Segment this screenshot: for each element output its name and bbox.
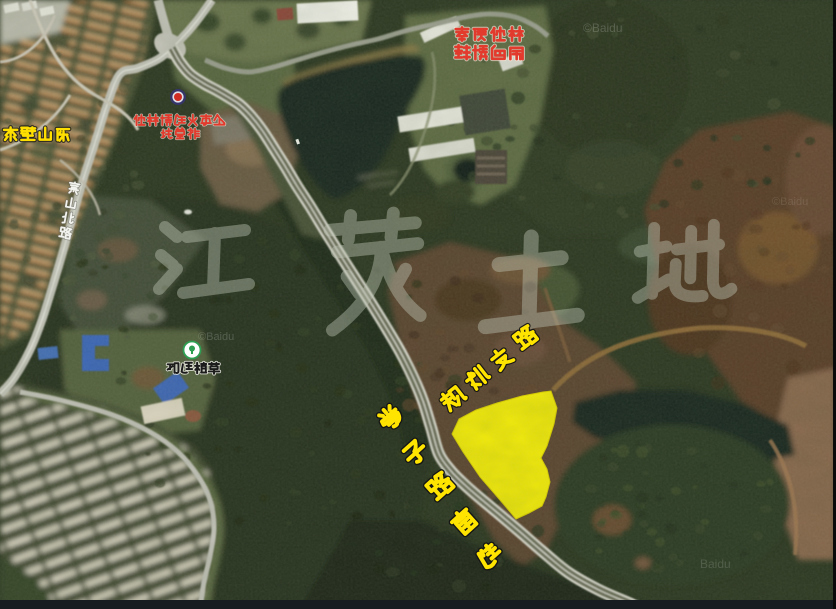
svg-text:©Baidu: ©Baidu [583, 21, 623, 35]
svg-text:©Baidu: ©Baidu [198, 331, 234, 343]
svg-text:Baidu: Baidu [700, 557, 731, 571]
svg-text:©Baidu: ©Baidu [772, 196, 808, 208]
